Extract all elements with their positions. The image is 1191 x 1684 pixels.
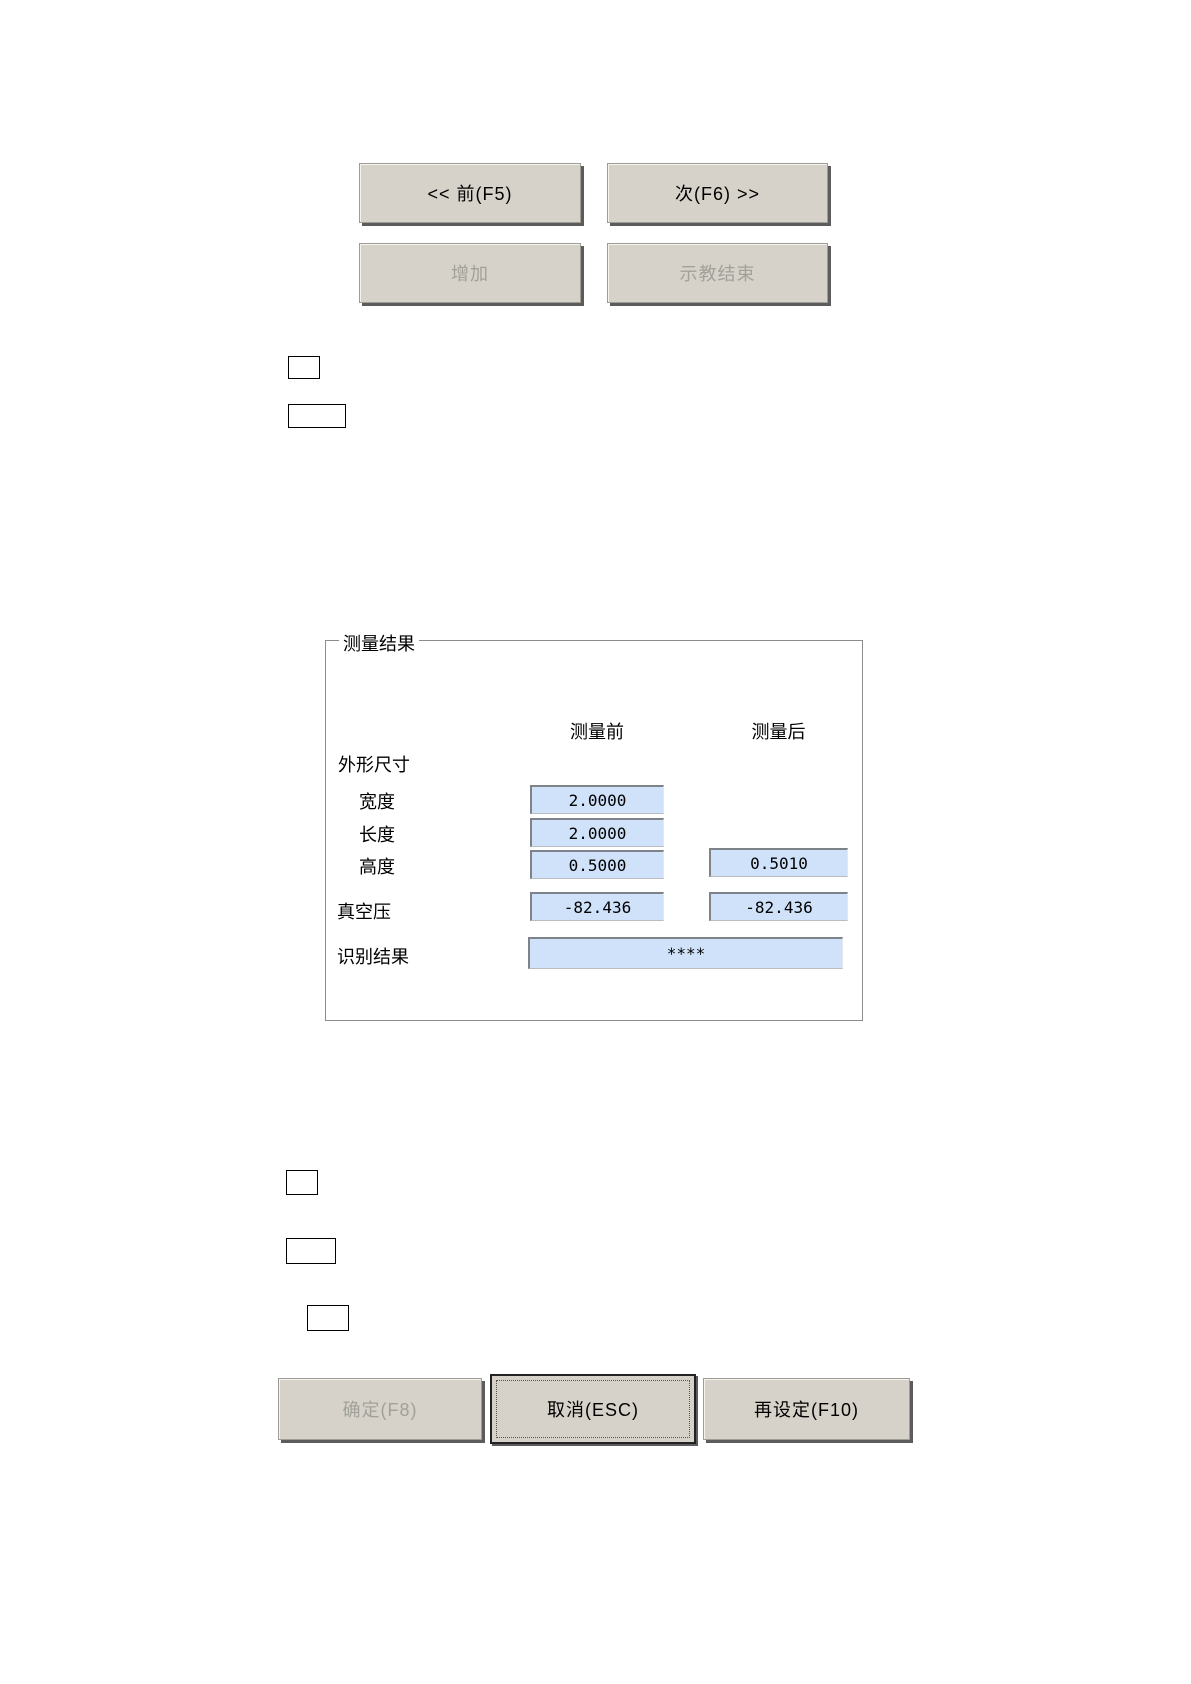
height-before-field[interactable]: 0.5000 [530, 850, 664, 879]
vacuum-pressure-label: 真空压 [337, 898, 391, 924]
height-after-field[interactable]: 0.5010 [709, 848, 848, 877]
width-label: 宽度 [359, 788, 395, 814]
column-header-before: 测量前 [530, 718, 664, 744]
callout-box-1 [288, 356, 320, 379]
vacuum-before-field[interactable]: -82.436 [530, 892, 664, 921]
measurement-results-groupbox: 测量结果 测量前 测量后 外形尺寸 宽度 2.0000 长度 2.0000 高度… [325, 640, 863, 1021]
callout-box-2 [288, 404, 346, 428]
recognition-result-label: 识别结果 [337, 943, 409, 969]
callout-box-4 [286, 1238, 336, 1264]
add-button[interactable]: 增加 [359, 243, 581, 303]
height-label: 高度 [359, 853, 395, 879]
groupbox-title: 测量结果 [339, 630, 419, 656]
cancel-button-label: 取消(ESC) [547, 1396, 639, 1422]
length-before-field[interactable]: 2.0000 [530, 818, 664, 847]
reset-button[interactable]: 再设定(F10) [703, 1378, 910, 1440]
callout-box-3 [286, 1170, 318, 1195]
next-button[interactable]: 次(F6) >> [607, 163, 828, 223]
vacuum-after-field[interactable]: -82.436 [709, 892, 848, 921]
length-label: 长度 [359, 821, 395, 847]
recognition-result-field[interactable]: **** [528, 937, 843, 969]
teach-end-button[interactable]: 示教结束 [607, 243, 828, 303]
ok-button[interactable]: 确定(F8) [278, 1378, 482, 1440]
prev-button[interactable]: << 前(F5) [359, 163, 581, 223]
width-before-field[interactable]: 2.0000 [530, 785, 664, 814]
callout-box-5 [307, 1305, 349, 1331]
cancel-button[interactable]: 取消(ESC) [490, 1374, 696, 1444]
column-header-after: 测量后 [709, 718, 848, 744]
section-dimensions-label: 外形尺寸 [338, 751, 410, 777]
